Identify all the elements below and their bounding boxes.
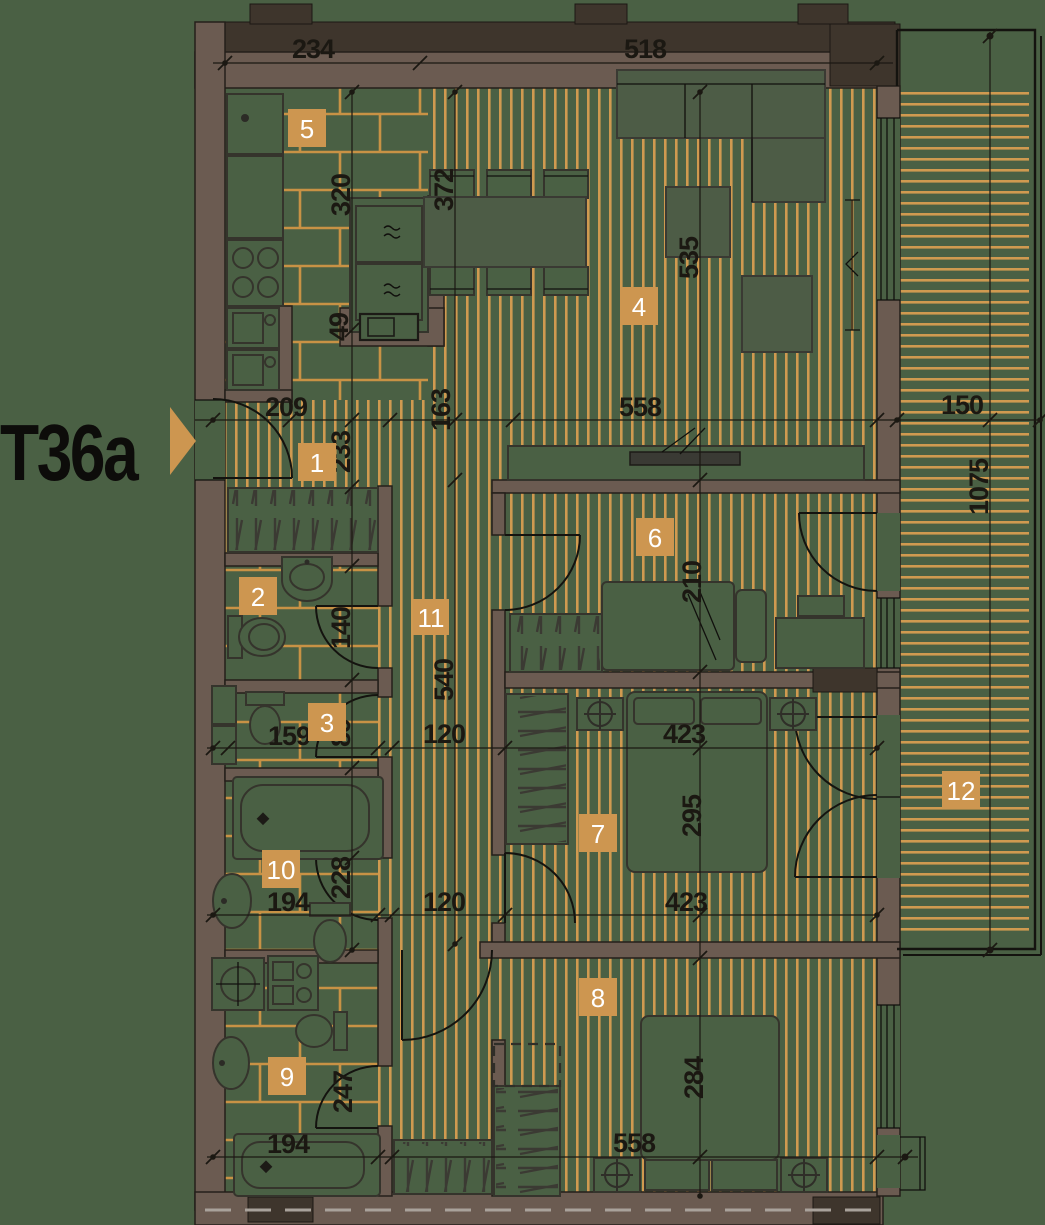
dimension-label: 1075 [964,458,994,515]
french-balcony-railing [900,1137,925,1190]
balcony-door-opening-8 [877,1135,900,1188]
fridge [227,94,283,154]
room-badge-7: 7 [579,814,617,852]
dimension-label: 423 [663,719,706,749]
svg-text:1: 1 [310,448,324,478]
dimension-label: 120 [423,719,465,749]
svg-text:3: 3 [320,708,334,738]
toilet [310,903,350,962]
wall-tab [798,4,848,24]
dimension-label: 120 [423,887,465,917]
dimension-label: 150 [941,390,983,420]
washing-machine [212,958,264,1010]
entry-door-opening [195,400,225,480]
dimension-label: 320 [326,174,356,216]
svg-text:10: 10 [267,855,296,885]
unit-title: T36a [0,408,139,497]
entry-arrow-icon [170,407,196,475]
window-bedroom8 [877,1005,900,1128]
dresser [776,618,864,668]
svg-text:4: 4 [632,292,646,322]
ottoman [742,276,812,352]
dimension-label: 194 [267,887,310,917]
dimension-label: 295 [677,794,707,837]
bed-double-8 [641,1016,779,1160]
dimension-label: 423 [665,887,708,917]
wall-tab [250,4,312,24]
corridor-wardrobe [394,1140,492,1194]
room-badge-6: 6 [636,518,674,556]
room-badge-2: 2 [239,577,277,615]
wall-block-dark [813,668,877,692]
exterior-wall-left [195,22,225,1210]
room-badge-8: 8 [579,978,617,1016]
svg-text:9: 9 [280,1062,294,1092]
svg-text:12: 12 [947,776,976,806]
svg-text:5: 5 [300,114,314,144]
dimension-label: 558 [619,392,662,422]
floor-plan-canvas: 234 518 320 372 535 49 209 163 558 150 2… [0,0,1045,1225]
dimension-label: 163 [426,388,456,431]
toilet [228,616,285,658]
wall-living-bedroom6 [492,480,900,493]
dimension-label: 234 [292,34,335,64]
sink [213,874,251,928]
svg-text:8: 8 [591,983,605,1013]
dimension-label: 247 [328,1071,358,1113]
kitchen-island [350,198,428,332]
room-badge-4: 4 [620,287,658,325]
dimension-label: 159 [268,721,311,751]
room-badge-11: 11 [413,599,449,635]
dimension-label: 540 [429,659,459,701]
pillow [701,698,761,724]
dimension-label: 209 [265,392,308,422]
entry-furniture [228,488,378,552]
room-badge-3: 3 [308,703,346,741]
plan-title: T36a [0,407,196,498]
svg-text:11: 11 [418,603,445,633]
vanity [268,956,318,1010]
dimension-label: 210 [677,561,707,603]
closet7 [506,694,568,844]
kitchen-cabinet [227,156,283,238]
bathtub [233,777,383,859]
tv [630,452,740,465]
sink [282,557,332,601]
dimension-label: 228 [326,856,356,899]
headboard [712,1160,777,1190]
floor-plan: 234 518 320 372 535 49 209 163 558 150 2… [0,0,1045,1225]
svg-text:6: 6 [648,523,662,553]
laundry-sink [227,308,279,390]
dimension-label: 284 [679,1056,709,1099]
window-bedroom6 [877,598,900,668]
room-badge-10: 10 [262,850,300,888]
wall-corner-dark [830,24,900,86]
room-badge-12: 12 [942,771,980,809]
dimension-label: 558 [613,1128,656,1158]
laundry-wall [278,306,292,402]
svg-text:2: 2 [251,582,265,612]
cabinet [212,686,236,724]
room-badge-1: 1 [298,443,336,481]
dimension-label: 194 [267,1129,310,1159]
dimension-label: 140 [326,607,356,649]
balcony-door-opening-6 [877,513,900,591]
dimension-label: 49 [324,312,354,341]
sink [213,1037,249,1089]
nightstand6 [798,596,844,616]
wall-bedroom7-8 [480,942,900,958]
dimension-label: 518 [624,34,667,64]
pillow [736,590,766,662]
stove [227,240,283,306]
dimension-label: 372 [429,169,459,211]
svg-text:7: 7 [591,819,605,849]
wall-tab [575,4,627,24]
dimension-label: 535 [674,236,704,279]
room-badge-5: 5 [288,109,326,147]
toilet [296,1012,347,1050]
room-badge-9: 9 [268,1057,306,1095]
